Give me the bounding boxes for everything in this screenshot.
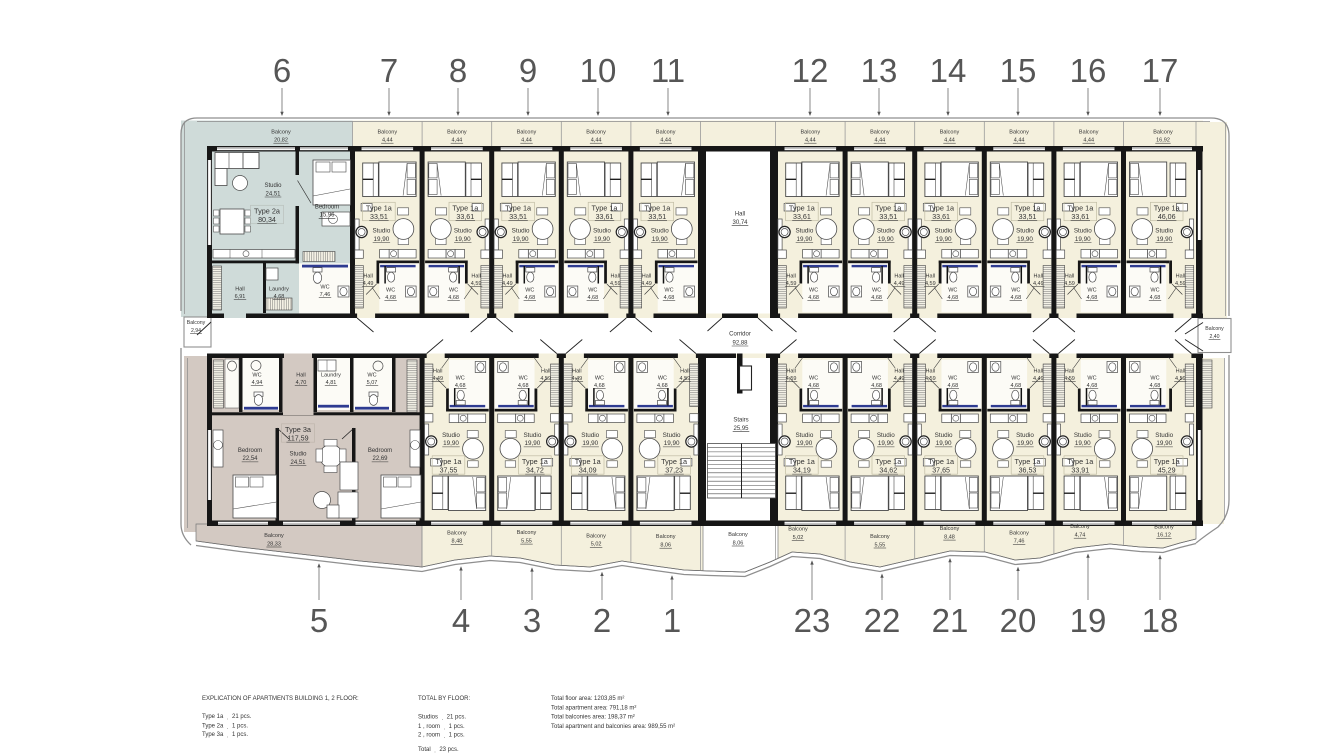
svg-text:Balcony: Balcony [656,130,676,136]
svg-text:Type 1a: Type 1a [1067,204,1094,213]
svg-text:WC: WC [456,376,465,382]
svg-text:4,59: 4,59 [1175,281,1186,287]
svg-text:19,90: 19,90 [525,440,541,447]
svg-text:Hall: Hall [235,287,244,293]
svg-text:Balcony: Balcony [447,530,467,536]
svg-text:12: 12 [792,52,829,89]
svg-text:Hall: Hall [680,369,689,375]
svg-text:19,90: 19,90 [1156,440,1172,447]
svg-text:19,90: 19,90 [664,440,680,447]
svg-text:WC: WC [1087,376,1096,382]
svg-text:Type 1a: Type 1a [1154,204,1181,213]
svg-text:WC: WC [1011,288,1020,294]
svg-text:Studio: Studio [1016,432,1034,439]
svg-text:Studio: Studio [651,228,669,235]
svg-text:Balcony: Balcony [656,534,676,540]
svg-text:Corridor: Corridor [729,332,751,338]
svg-text:4,70: 4,70 [296,380,307,386]
svg-text:WC: WC [588,288,597,294]
svg-text:4,68: 4,68 [1087,295,1098,301]
svg-text:Type 1a: Type 1a [1015,457,1042,466]
svg-text:WC: WC [1087,288,1096,294]
svg-text:4,44: 4,44 [1014,138,1025,144]
svg-text:Hall: Hall [1034,369,1043,375]
svg-text:19,90: 19,90 [797,236,813,243]
svg-text:33,51: 33,51 [1019,213,1037,221]
svg-text:Type 1a: Type 1a [592,204,619,213]
svg-text:16,12: 16,12 [1157,533,1171,539]
svg-text:4,59: 4,59 [786,376,797,382]
svg-text:80,34: 80,34 [258,216,276,224]
svg-text:4,44: 4,44 [382,138,393,144]
svg-text:28,33: 28,33 [267,541,281,547]
svg-text:4,81: 4,81 [326,380,337,386]
svg-text:14: 14 [930,52,967,89]
svg-text:20,82: 20,82 [274,138,288,144]
svg-text:22,54: 22,54 [242,456,258,462]
svg-text:33,51: 33,51 [648,213,666,221]
svg-text:Studio: Studio [1155,228,1173,235]
svg-text:7,46: 7,46 [320,292,331,298]
svg-text:4,49: 4,49 [894,376,905,382]
svg-text:WC: WC [525,288,534,294]
svg-text:Hall: Hall [611,274,620,280]
svg-text:4,59: 4,59 [786,281,797,287]
svg-text:4,49: 4,49 [502,281,513,287]
svg-text:Hall: Hall [433,369,442,375]
svg-text:Balcony: Balcony [788,527,808,533]
svg-text:Type 3a ˌ 1 pcs.: Type 3a ˌ 1 pcs. [202,732,248,738]
svg-text:4,59: 4,59 [925,376,936,382]
svg-text:19,90: 19,90 [878,440,894,447]
svg-text:Balcony: Balcony [517,530,537,536]
svg-text:Total apartment and balconies: Total apartment and balconies area: 989,… [551,724,675,730]
svg-text:34,72: 34,72 [526,466,544,474]
svg-text:Laundry: Laundry [321,373,341,379]
svg-text:WC: WC [809,288,818,294]
svg-text:5,55: 5,55 [521,538,532,544]
svg-text:Balcony: Balcony [870,130,890,136]
svg-text:19,90: 19,90 [513,236,529,243]
svg-text:19,90: 19,90 [1017,440,1033,447]
svg-text:4,68: 4,68 [594,383,605,389]
svg-text:WC: WC [252,373,261,379]
svg-text:33,61: 33,61 [932,213,950,221]
svg-text:4,68: 4,68 [947,383,958,389]
svg-text:Total floor area: 1203,85 m²: Total floor area: 1203,85 m² [551,696,624,702]
svg-text:22,69: 22,69 [372,456,388,462]
svg-text:Type 3a: Type 3a [285,425,312,434]
svg-text:4,44: 4,44 [452,138,463,144]
svg-text:Studio: Studio [581,432,599,439]
svg-text:45,29: 45,29 [1158,466,1176,474]
svg-text:Balcony: Balcony [517,130,537,136]
svg-text:WC: WC [872,288,881,294]
svg-text:WC: WC [320,285,329,291]
svg-text:19,90: 19,90 [936,440,952,447]
svg-text:33,61: 33,61 [596,213,614,221]
svg-text:Type 1a: Type 1a [505,204,532,213]
svg-text:23: 23 [794,602,831,639]
svg-text:WC: WC [948,288,957,294]
svg-text:WC: WC [1150,376,1159,382]
svg-text:16: 16 [1070,52,1107,89]
svg-text:4,68: 4,68 [448,295,459,301]
svg-text:4,68: 4,68 [947,295,958,301]
svg-text:33,61: 33,61 [456,213,474,221]
svg-text:Type 1a: Type 1a [366,204,393,213]
svg-text:Studio: Studio [372,228,390,235]
svg-text:Type 1a: Type 1a [1015,204,1042,213]
svg-text:8,06: 8,06 [733,540,744,546]
svg-text:3: 3 [523,602,541,639]
svg-text:46,06: 46,06 [1158,213,1176,221]
svg-text:TOTAL BY FLOOR:: TOTAL BY FLOOR: [418,696,470,702]
svg-text:19,90: 19,90 [594,236,610,243]
svg-text:117,59: 117,59 [287,434,308,442]
svg-text:4,49: 4,49 [432,376,443,382]
svg-text:19,90: 19,90 [652,236,668,243]
svg-text:Type 1a ˌ 21 pcs.: Type 1a ˌ 21 pcs. [202,714,252,720]
svg-text:8,06: 8,06 [660,543,671,549]
svg-text:30,74: 30,74 [732,220,748,226]
svg-text:4,59: 4,59 [1175,376,1186,382]
svg-text:Hall: Hall [786,369,795,375]
svg-text:19,90: 19,90 [1156,236,1172,243]
svg-text:8,48: 8,48 [452,539,463,545]
svg-text:Stairs: Stairs [733,418,748,424]
svg-text:Studio: Studio [593,228,611,235]
svg-text:4,68: 4,68 [274,294,285,300]
svg-text:Type 1a: Type 1a [789,204,816,213]
svg-text:Balcony: Balcony [1154,524,1174,530]
svg-text:25,95: 25,95 [733,426,749,432]
svg-text:4,68: 4,68 [524,295,535,301]
svg-text:Laundry: Laundry [269,287,289,293]
svg-text:37,55: 37,55 [440,466,458,474]
svg-text:Type 2a ˌ 1 pcs.: Type 2a ˌ 1 pcs. [202,724,248,730]
svg-text:21: 21 [932,602,969,639]
svg-text:Balcony: Balcony [447,130,467,136]
svg-text:33,61: 33,61 [793,213,811,221]
svg-text:4,68: 4,68 [1087,383,1098,389]
svg-text:Studio: Studio [1016,228,1034,235]
svg-text:4,68: 4,68 [518,383,529,389]
svg-text:4,59: 4,59 [540,376,551,382]
svg-text:4,59: 4,59 [610,281,621,287]
svg-text:4,68: 4,68 [808,383,819,389]
svg-text:4,44: 4,44 [591,138,602,144]
svg-text:5,02: 5,02 [793,535,804,541]
svg-text:34,19: 34,19 [793,466,811,474]
svg-text:4,59: 4,59 [471,281,482,287]
svg-text:33,51: 33,51 [879,213,897,221]
svg-text:34,09: 34,09 [579,466,597,474]
svg-text:Studio: Studio [1074,228,1092,235]
svg-text:4,44: 4,44 [521,138,532,144]
svg-text:4,49: 4,49 [641,281,652,287]
svg-text:15,96: 15,96 [319,213,335,219]
svg-text:Balcony: Balcony [378,130,398,136]
svg-text:5,55: 5,55 [875,542,886,548]
svg-text:WC: WC [449,288,458,294]
svg-text:Type 1a: Type 1a [1067,457,1094,466]
svg-text:6,91: 6,91 [235,294,246,300]
svg-text:Balcony: Balcony [187,320,206,326]
svg-text:11: 11 [651,52,685,89]
svg-text:4,59: 4,59 [1064,281,1075,287]
svg-text:Hall: Hall [926,274,935,280]
svg-text:Type 1a: Type 1a [644,204,671,213]
svg-text:WC: WC [872,376,881,382]
svg-text:Studio: Studio [289,452,307,458]
svg-text:4,59: 4,59 [1064,376,1075,382]
svg-text:2,94: 2,94 [191,328,201,334]
svg-text:WC: WC [367,373,376,379]
svg-text:Type 1a: Type 1a [436,457,463,466]
svg-text:4,74: 4,74 [1075,533,1086,539]
svg-text:Bedroom: Bedroom [368,448,392,454]
svg-text:Type 1a: Type 1a [522,457,549,466]
svg-text:Balcony: Balcony [940,526,960,532]
svg-text:WC: WC [948,376,957,382]
svg-text:10: 10 [580,52,617,89]
svg-text:Studio: Studio [264,183,282,189]
svg-text:Hall: Hall [1034,274,1043,280]
svg-text:92,88: 92,88 [732,340,748,346]
svg-text:Studio: Studio [454,228,472,235]
svg-text:2: 2 [593,602,611,639]
svg-text:Total ˌ 23 pcs.: Total ˌ 23 pcs. [418,747,459,753]
svg-text:Hall: Hall [1176,274,1185,280]
svg-text:4,68: 4,68 [871,295,882,301]
svg-text:18: 18 [1142,602,1179,639]
svg-text:4,68: 4,68 [1150,383,1161,389]
svg-text:Hall: Hall [894,274,903,280]
svg-text:4,68: 4,68 [1010,295,1021,301]
svg-text:Hall: Hall [1065,274,1074,280]
svg-text:Type 1a: Type 1a [875,457,902,466]
svg-text:Hall: Hall [926,369,935,375]
svg-text:Type 1a: Type 1a [575,457,602,466]
svg-text:Balcony: Balcony [728,532,748,538]
svg-text:4,94: 4,94 [252,380,263,386]
svg-text:16,92: 16,92 [1156,138,1170,144]
svg-text:Studio: Studio [1074,432,1092,439]
svg-text:7,46: 7,46 [1014,539,1025,545]
svg-text:37,23: 37,23 [665,466,683,474]
svg-text:2,40: 2,40 [1209,334,1219,340]
svg-text:Studio: Studio [512,228,530,235]
svg-text:Studio: Studio [523,432,541,439]
svg-text:Studio: Studio [935,228,953,235]
svg-text:5: 5 [310,602,328,639]
svg-text:Hall: Hall [471,274,480,280]
svg-text:5,02: 5,02 [591,542,602,548]
svg-text:15: 15 [1000,52,1037,89]
svg-text:Type 1a: Type 1a [875,204,902,213]
svg-text:Hall: Hall [363,274,372,280]
svg-text:33,61: 33,61 [1071,213,1089,221]
svg-text:Total balconies area: 198,37 m: Total balconies area: 198,37 m² [551,715,635,721]
svg-text:4,44: 4,44 [944,138,955,144]
svg-text:WC: WC [809,376,818,382]
svg-text:19,90: 19,90 [455,236,471,243]
svg-text:4,49: 4,49 [363,281,374,287]
svg-text:4,49: 4,49 [572,376,583,382]
svg-text:4,49: 4,49 [894,281,905,287]
svg-text:9: 9 [519,52,537,89]
svg-text:Type 1a: Type 1a [789,457,816,466]
svg-text:4: 4 [452,602,470,639]
svg-text:4,44: 4,44 [875,138,886,144]
svg-text:Balcony: Balcony [586,130,606,136]
svg-text:19,90: 19,90 [1075,440,1091,447]
svg-text:Balcony: Balcony [801,130,821,136]
svg-text:2 , room ˌ 1 pcs.: 2 , room ˌ 1 pcs. [418,733,465,739]
svg-text:4,68: 4,68 [1150,295,1161,301]
svg-text:Studio: Studio [795,228,813,235]
svg-text:Studio: Studio [1155,432,1173,439]
svg-text:19: 19 [1070,602,1107,639]
svg-text:Hall: Hall [642,274,651,280]
svg-text:Type 1a: Type 1a [661,457,688,466]
svg-text:WC: WC [595,376,604,382]
svg-text:Balcony: Balcony [264,533,284,539]
svg-text:7: 7 [380,52,398,89]
svg-text:Balcony: Balcony [940,130,960,136]
svg-text:Hall: Hall [503,274,512,280]
svg-text:8,48: 8,48 [944,534,955,540]
svg-text:Type 1a: Type 1a [928,457,955,466]
svg-text:Balcony: Balcony [1070,524,1090,530]
svg-text:Studio: Studio [663,432,681,439]
svg-text:Balcony: Balcony [1153,130,1173,136]
svg-text:4,68: 4,68 [385,295,396,301]
svg-text:4,44: 4,44 [1083,138,1094,144]
svg-text:36,53: 36,53 [1019,466,1037,474]
svg-text:Balcony: Balcony [1079,130,1099,136]
svg-text:Type 1a: Type 1a [452,204,479,213]
svg-text:4,68: 4,68 [455,383,466,389]
svg-text:WC: WC [658,376,667,382]
svg-text:Studio: Studio [877,432,895,439]
svg-text:Balcony: Balcony [1205,326,1224,332]
svg-text:6: 6 [273,52,291,89]
svg-text:24,51: 24,51 [265,191,281,197]
svg-text:Balcony: Balcony [271,130,291,136]
svg-text:1: 1 [663,602,681,639]
svg-text:Studio: Studio [877,228,895,235]
svg-text:33,51: 33,51 [509,213,527,221]
svg-text:WC: WC [664,288,673,294]
svg-text:34,62: 34,62 [879,466,897,474]
svg-text:Studios ˌ 21 pcs.: Studios ˌ 21 pcs. [418,715,466,721]
svg-text:4,49: 4,49 [1033,281,1044,287]
svg-text:Type 2a: Type 2a [254,207,281,216]
svg-text:Hall: Hall [786,274,795,280]
svg-text:Hall: Hall [894,369,903,375]
svg-text:Total apartment area: 791,18 m: Total apartment area: 791,18 m² [551,706,636,712]
svg-text:4,68: 4,68 [657,383,668,389]
svg-text:19,90: 19,90 [1075,236,1091,243]
svg-text:Studio: Studio [795,432,813,439]
svg-text:33,51: 33,51 [370,213,388,221]
svg-text:8: 8 [449,52,467,89]
svg-text:WC: WC [1150,288,1159,294]
svg-text:37,65: 37,65 [932,466,950,474]
svg-text:Balcony: Balcony [870,534,890,540]
svg-text:Studio: Studio [442,432,460,439]
svg-text:Bedroom: Bedroom [238,448,262,454]
svg-text:4,44: 4,44 [660,138,671,144]
svg-text:19,90: 19,90 [443,440,459,447]
svg-text:4,68: 4,68 [808,295,819,301]
svg-text:Hall: Hall [541,369,550,375]
svg-text:Studio: Studio [935,432,953,439]
svg-text:WC: WC [519,376,528,382]
svg-text:17: 17 [1142,52,1179,89]
svg-text:5,07: 5,07 [367,380,378,386]
svg-text:Hall: Hall [735,212,745,218]
svg-text:Hall: Hall [1065,369,1074,375]
svg-text:4,68: 4,68 [871,383,882,389]
svg-text:4,68: 4,68 [587,295,598,301]
svg-text:Balcony: Balcony [586,533,606,539]
svg-text:4,68: 4,68 [664,295,675,301]
svg-text:WC: WC [386,288,395,294]
svg-text:Balcony: Balcony [1009,130,1029,136]
svg-text:4,59: 4,59 [925,281,936,287]
svg-text:4,44: 4,44 [805,138,816,144]
svg-text:EXPLICATION OF APARTMENTS BUIL: EXPLICATION OF APARTMENTS BUILDING 1, 2 … [202,696,359,702]
svg-text:13: 13 [861,52,898,89]
svg-text:19,90: 19,90 [582,440,598,447]
svg-text:22: 22 [864,602,901,639]
svg-text:24,51: 24,51 [290,460,306,466]
svg-text:Hall: Hall [296,373,305,379]
svg-text:19,90: 19,90 [936,236,952,243]
svg-text:19,90: 19,90 [1017,236,1033,243]
svg-text:4,68: 4,68 [1010,383,1021,389]
svg-text:Balcony: Balcony [1009,530,1029,536]
svg-text:Hall: Hall [572,369,581,375]
svg-text:19,90: 19,90 [374,236,390,243]
svg-text:Type 1a: Type 1a [928,204,955,213]
svg-text:4,59: 4,59 [680,376,691,382]
svg-text:4,49: 4,49 [1033,376,1044,382]
svg-text:Type 1a: Type 1a [1154,457,1181,466]
svg-text:Hall: Hall [1176,369,1185,375]
svg-text:19,90: 19,90 [797,440,813,447]
svg-text:33,91: 33,91 [1071,466,1089,474]
svg-text:Bedroom: Bedroom [315,205,339,211]
svg-text:19,90: 19,90 [878,236,894,243]
svg-text:20: 20 [1000,602,1037,639]
svg-text:WC: WC [1011,376,1020,382]
svg-text:1 , room ˌ 1 pcs.: 1 , room ˌ 1 pcs. [418,724,465,730]
